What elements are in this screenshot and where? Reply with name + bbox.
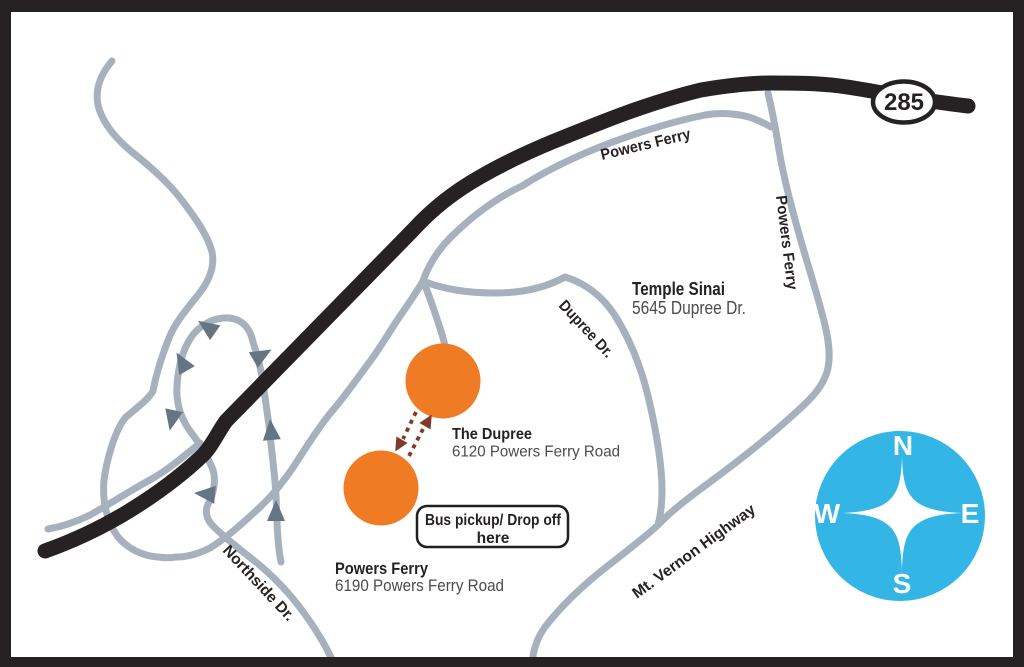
svg-text:The Dupree: The Dupree <box>452 426 532 443</box>
svg-text:N: N <box>893 430 913 461</box>
svg-text:6120 Powers Ferry Road: 6120 Powers Ferry Road <box>452 444 620 461</box>
svg-text:Temple Sinai: Temple Sinai <box>632 278 725 299</box>
svg-text:5645 Dupree Dr.: 5645 Dupree Dr. <box>632 298 746 318</box>
svg-text:W: W <box>814 498 841 529</box>
svg-text:E: E <box>961 498 980 529</box>
svg-text:6190 Powers Ferry Road: 6190 Powers Ferry Road <box>335 577 504 595</box>
svg-text:Powers Ferry: Powers Ferry <box>335 559 428 578</box>
svg-text:here: here <box>477 530 510 547</box>
svg-text:S: S <box>893 568 912 599</box>
svg-text:285: 285 <box>884 89 924 116</box>
svg-text:Bus pickup/ Drop off: Bus pickup/ Drop off <box>425 512 562 529</box>
